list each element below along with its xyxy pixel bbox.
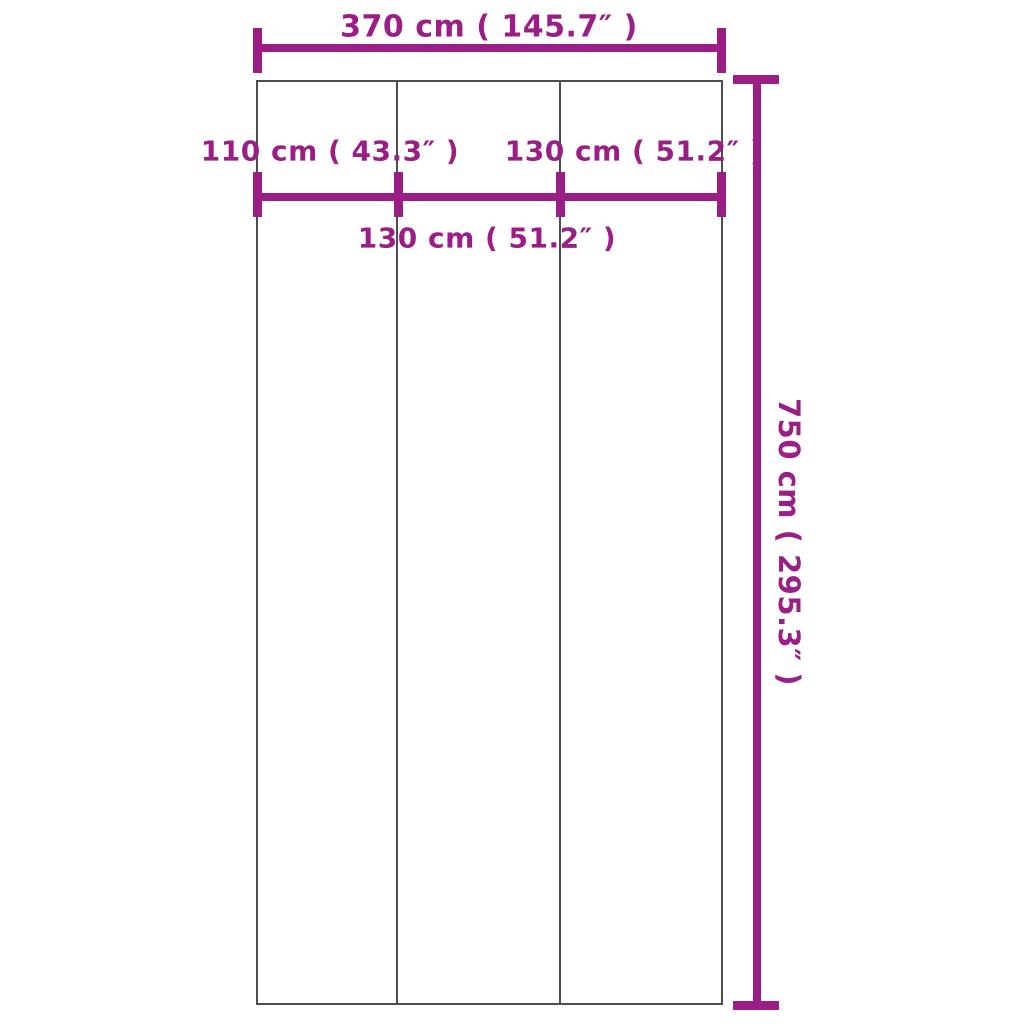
dimension-diagram: 370 cm ( 145.7″ ) 110 cm ( 43.3″ ) 130 c… — [0, 0, 1024, 1024]
dimension-tick — [253, 172, 262, 217]
panel-divider-right — [559, 80, 561, 1005]
dimension-tick — [733, 1001, 779, 1010]
middle-panel-width-label: 130 cm ( 51.2″ ) — [358, 222, 616, 255]
dimension-tick — [733, 75, 779, 84]
dimension-tick — [556, 172, 565, 217]
overall-height-label: 750 cm ( 295.3″ ) — [772, 398, 806, 686]
overall-width-label: 370 cm ( 145.7″ ) — [340, 10, 638, 45]
left-panel-width-label: 110 cm ( 43.3″ ) — [201, 135, 459, 168]
dimension-tick — [394, 172, 403, 217]
dimension-tick — [717, 172, 726, 217]
overall-height-dimension-line — [753, 79, 761, 1006]
dimension-tick — [253, 28, 262, 73]
dimension-tick — [717, 28, 726, 73]
panel-divider-left — [396, 80, 398, 1005]
panel-width-dimension-line — [253, 193, 726, 201]
overall-width-dimension-line — [253, 44, 726, 52]
right-panel-width-label: 130 cm ( 51.2″ ) — [505, 135, 763, 168]
panel-outline — [256, 80, 723, 1005]
